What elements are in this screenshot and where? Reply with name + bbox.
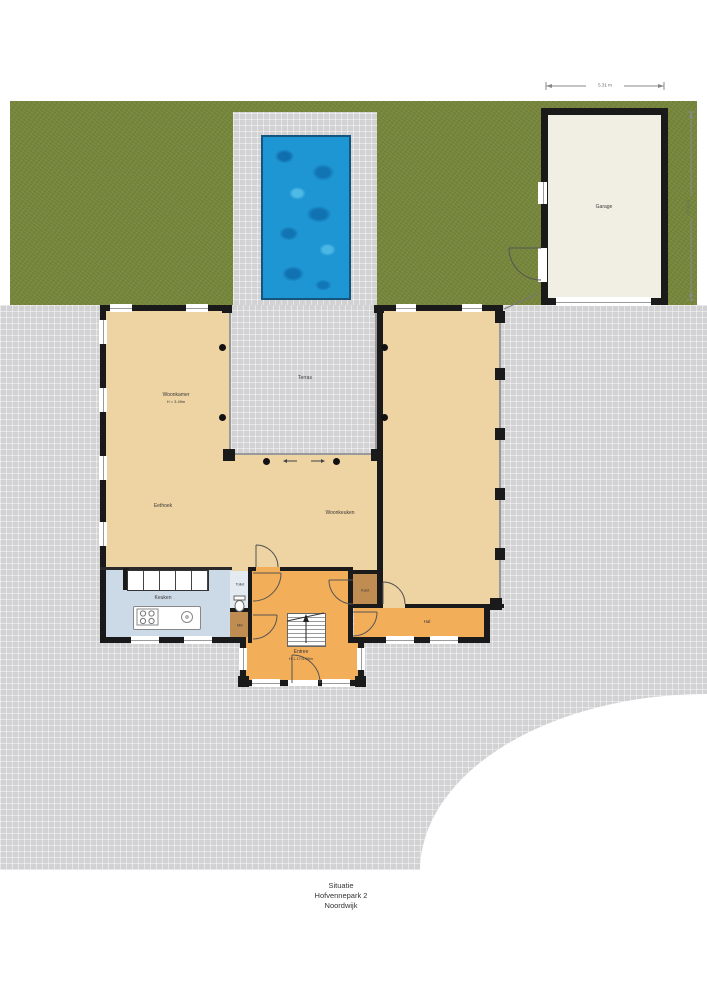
plan-caption: Situatie Hofvennepark 2 Noordwijk [315, 881, 368, 911]
wall [348, 637, 490, 643]
room-note: H 1.17/3.08m [289, 656, 313, 661]
room-hal [354, 606, 486, 639]
wall [348, 567, 353, 643]
front-door-opening [288, 680, 318, 686]
hal-label: Hal [424, 619, 431, 625]
room-right-wing [383, 311, 500, 604]
column [219, 414, 226, 421]
garage-side-door-opening [538, 248, 547, 282]
kitchen-island [133, 606, 201, 630]
wall [100, 637, 246, 643]
porch-corner-post [355, 676, 366, 687]
eethoek-label: Eethoek [154, 503, 172, 510]
terras-label: Terras [298, 375, 312, 382]
entree-label: Entree H 1.17/3.08m [289, 649, 313, 661]
toilet-label: Toilet [236, 583, 245, 588]
garage-width-dimension: 5.31 m [598, 83, 612, 88]
window [386, 636, 414, 644]
kitchen-counter [127, 570, 209, 591]
window [252, 679, 280, 687]
garage-label: Garage [596, 204, 613, 211]
window [430, 636, 458, 644]
woonkamer-label: Woonkamer H = 3.49m [163, 392, 190, 404]
column [381, 414, 388, 421]
window [184, 636, 212, 644]
right-wing-glass-wall [499, 311, 501, 604]
window [396, 304, 416, 312]
wall [352, 604, 504, 608]
column [333, 458, 340, 465]
facade-post [495, 311, 505, 323]
facade-post [495, 368, 505, 380]
site-plan: Garage 5.31 m 8.77 m [0, 0, 707, 1000]
door-opening [256, 567, 280, 571]
room-name: Woonkamer [163, 392, 190, 399]
window [110, 304, 132, 312]
window [99, 320, 107, 344]
window [99, 522, 107, 546]
column [219, 344, 226, 351]
wall-end-post [222, 305, 232, 313]
caption-title: Situatie [315, 881, 368, 891]
window [99, 388, 107, 412]
window [462, 304, 482, 312]
mk-label: MK [237, 622, 243, 627]
wall [248, 567, 252, 643]
porch-corner-post [238, 676, 249, 687]
terras-corner-post [371, 449, 383, 461]
window [239, 648, 247, 670]
caption-city: Noordwijk [315, 901, 368, 911]
window [357, 648, 365, 670]
column [263, 458, 270, 465]
terras-corner-post [223, 449, 235, 461]
window [186, 304, 208, 312]
kast-label: Kast [361, 587, 369, 592]
wall [348, 570, 381, 574]
facade-post [495, 488, 505, 500]
window [131, 636, 159, 644]
terras-rail-left [229, 305, 231, 455]
wall-end-post [374, 305, 384, 313]
room-toilet [230, 571, 250, 608]
woonkeuken-label: Woonkeuken [325, 510, 354, 517]
garage-door-opening [556, 297, 651, 306]
window [322, 679, 350, 687]
door-opening [383, 604, 405, 608]
keuken-label: Keuken [155, 595, 172, 602]
wall [230, 608, 250, 612]
terras-rail-bottom [229, 453, 377, 455]
facade-post [495, 428, 505, 440]
room-note: H = 3.49m [163, 399, 190, 404]
window [99, 456, 107, 480]
column [381, 344, 388, 351]
garage-depth-dimension: 8.77 m [686, 200, 691, 214]
staircase [287, 613, 326, 647]
garage-window [538, 182, 547, 204]
facade-post [495, 548, 505, 560]
facade-corner-post [490, 598, 502, 610]
swimming-pool [261, 135, 351, 300]
caption-address: Hofvennepark 2 [315, 891, 368, 901]
